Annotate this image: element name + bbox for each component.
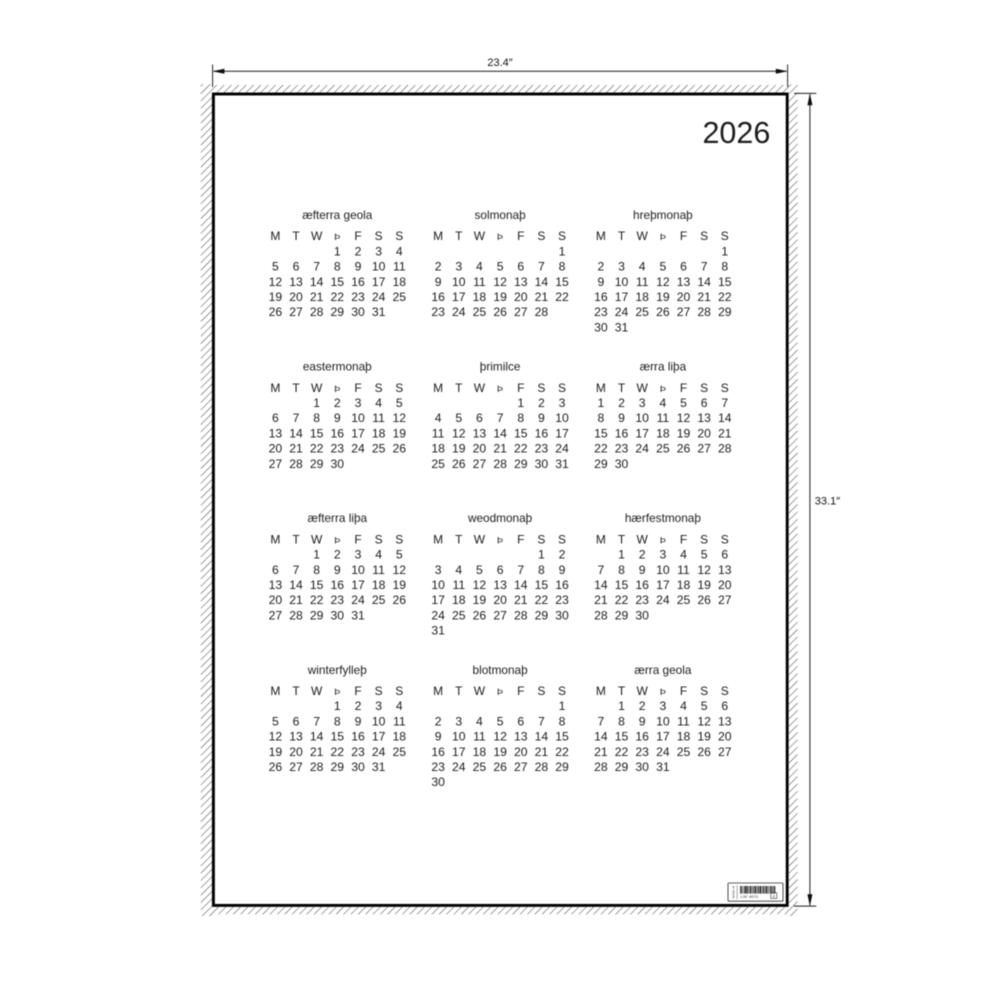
svg-text:23.4″: 23.4″	[487, 57, 512, 69]
svg-text:2026: 2026	[702, 116, 770, 150]
svg-text:hreþmonaþ: hreþmonaþ	[633, 208, 693, 222]
svg-text:þrimilce: þrimilce	[480, 360, 521, 374]
svg-text:hærfestmonaþ: hærfestmonaþ	[625, 511, 702, 525]
svg-text:1: 1	[559, 244, 566, 258]
svg-text:31: 31	[431, 624, 445, 638]
svg-text:282930: 282930	[594, 608, 649, 622]
svg-text:LSF 4073: LSF 4073	[741, 894, 759, 899]
svg-text:eastermonaþ: eastermonaþ	[303, 360, 372, 374]
svg-text:ærra liþa: ærra liþa	[640, 360, 687, 374]
svg-text:æfterra liþa: æfterra liþa	[307, 511, 367, 525]
svg-text:33.1″: 33.1″	[815, 496, 840, 508]
svg-text:1: 1	[559, 699, 566, 713]
svg-text:30: 30	[431, 775, 445, 789]
svg-text:1: 1	[721, 244, 728, 258]
svg-text:solmonaþ: solmonaþ	[475, 208, 527, 222]
svg-text:æfterra geola: æfterra geola	[302, 208, 373, 222]
svg-text:winterfylleþ: winterfylleþ	[307, 663, 367, 677]
svg-text:blotmonaþ: blotmonaþ	[473, 663, 529, 677]
svg-text:MADE IN: MADE IN	[732, 886, 736, 899]
svg-text:weodmonaþ: weodmonaþ	[467, 511, 533, 525]
svg-text:ærra geola: ærra geola	[634, 663, 691, 677]
